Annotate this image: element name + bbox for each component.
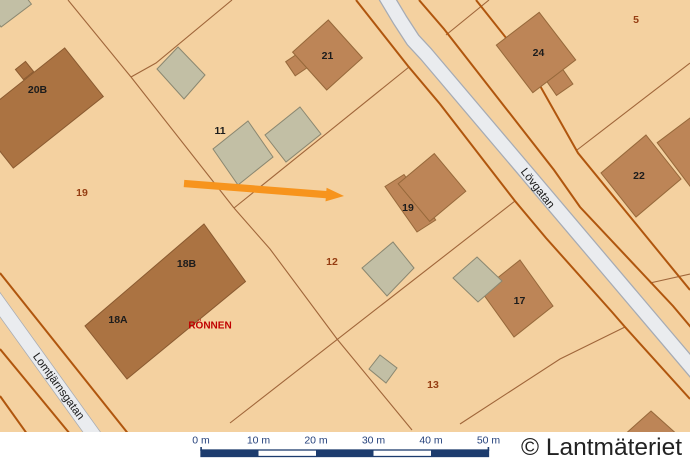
svg-text:10 m: 10 m bbox=[247, 435, 271, 447]
svg-text:17: 17 bbox=[514, 295, 526, 307]
svg-text:11: 11 bbox=[214, 125, 225, 137]
svg-text:40 m: 40 m bbox=[419, 435, 443, 447]
svg-text:18A: 18A bbox=[108, 314, 128, 326]
svg-text:19: 19 bbox=[402, 202, 414, 214]
svg-text:18B: 18B bbox=[177, 258, 197, 270]
svg-text:20 m: 20 m bbox=[304, 435, 328, 447]
svg-text:30 m: 30 m bbox=[362, 435, 386, 447]
svg-text:50 m: 50 m bbox=[477, 435, 501, 447]
svg-text:21: 21 bbox=[322, 50, 334, 62]
svg-text:0 m: 0 m bbox=[192, 435, 210, 447]
svg-text:12: 12 bbox=[326, 256, 338, 268]
svg-text:RÖNNEN: RÖNNEN bbox=[188, 319, 231, 332]
svg-text:13: 13 bbox=[427, 379, 439, 391]
svg-text:22: 22 bbox=[633, 170, 645, 182]
svg-text:24: 24 bbox=[533, 47, 545, 59]
svg-text:20B: 20B bbox=[28, 84, 48, 96]
svg-text:© Lantmäteriet: © Lantmäteriet bbox=[521, 434, 682, 460]
svg-text:19: 19 bbox=[76, 187, 88, 199]
svg-text:5: 5 bbox=[633, 14, 639, 26]
